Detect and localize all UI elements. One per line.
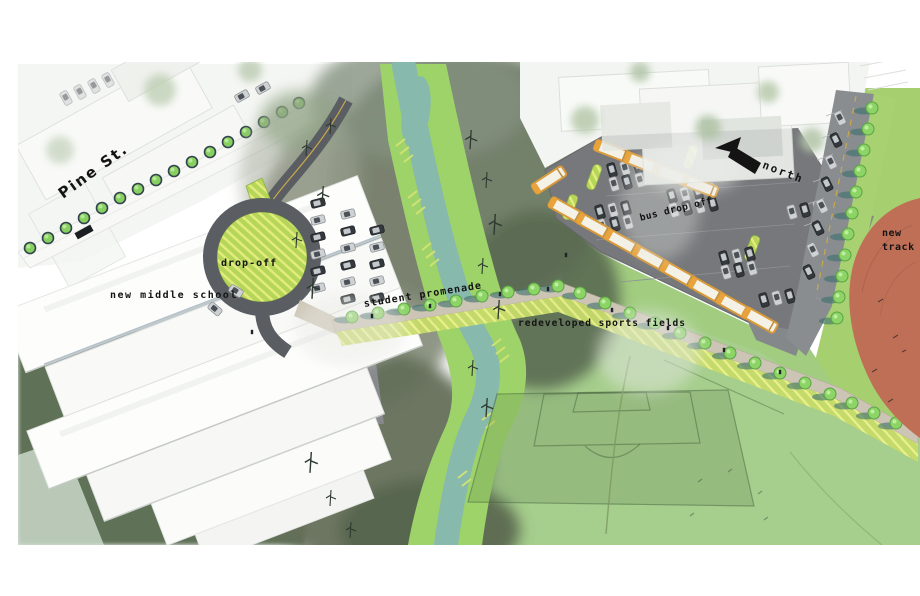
tree-icon (133, 184, 144, 195)
site-plan-canvas (0, 0, 920, 596)
tree-icon (169, 166, 180, 177)
tree-icon (43, 233, 54, 244)
tree-icon (151, 175, 162, 186)
tree-icon (115, 193, 126, 204)
tree-icon (97, 203, 108, 214)
tree-icon (187, 157, 198, 168)
tree-icon (241, 127, 252, 138)
tree-icon (205, 147, 216, 158)
tree-icon (223, 137, 234, 148)
tree-icon (25, 243, 36, 254)
tree-icon (79, 213, 90, 224)
tree-icon (61, 223, 72, 234)
site-plan-rendering: Pine St. new middle school drop-off stud… (0, 0, 920, 596)
